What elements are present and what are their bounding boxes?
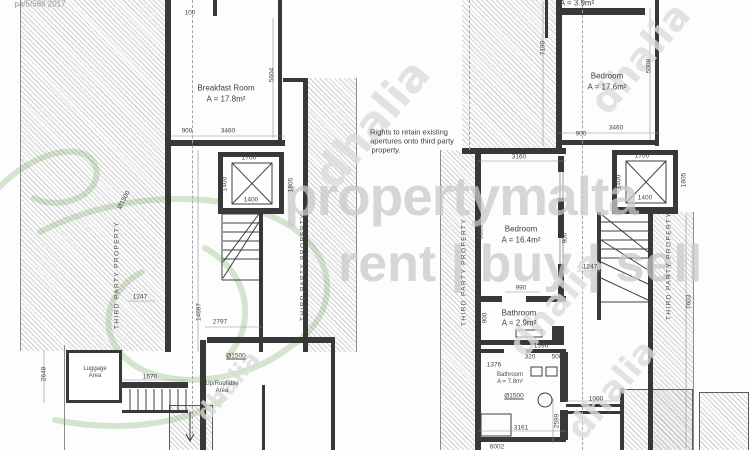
wall [165,0,171,352]
room-label-bathroom-1: Bathroom [502,309,537,318]
boundary-line [20,0,21,351]
wall [122,382,188,388]
dhalia-watermark: dhalia [500,243,612,365]
wall [303,78,308,352]
room-label-breakfast: Breakfast Room [197,84,254,93]
boundary-line [693,212,694,450]
room-area-bedroom-1: A = 17.6m² [588,83,627,92]
wall [122,410,188,413]
dim-label: 1376 [487,362,501,369]
wall [200,340,206,450]
dim-label: 3460 [221,128,235,135]
lift-shaft-left [218,152,284,214]
wall [560,410,568,440]
wall [612,208,678,214]
wall [556,0,562,150]
dim-label: 3160 [512,154,526,161]
room-area-top: A = 3.9m² [560,0,594,8]
dim-label: 2797 [213,319,227,326]
room-label-roofable: Area [216,388,229,394]
wall [262,385,265,450]
boundary-line [64,345,65,450]
wall [259,205,263,352]
dim-label: 1247 [583,264,597,271]
wall [597,212,601,320]
hatch-block-southeast-2 [700,393,748,450]
apertures-note: apertures onto third party [370,137,454,146]
hatch-left-plan-east [307,78,357,352]
wall [648,212,653,450]
wall [655,0,659,146]
dim-label: 5604 [269,68,276,82]
centerline-dashed [192,0,193,434]
hatch-right-plan-top [462,0,557,148]
wall [620,388,624,450]
room-area-breakfast: A = 17.8m² [207,95,246,104]
door-opening [502,296,526,302]
dim-label: 990 [516,285,527,292]
wall [213,0,217,16]
dim-label: 3161 [514,425,528,432]
hatch-left-plan-west [20,0,166,351]
dim-label: 900 [482,313,489,324]
dim-label: 100 [185,10,196,17]
wall [566,411,622,414]
window-opening [558,238,564,264]
wall [560,8,645,15]
dim-label: 1805 [681,173,688,187]
centerline-dashed [469,0,470,150]
dim-label: 14697 [196,303,203,321]
wall [165,140,285,146]
dim-label: 3460 [609,125,623,132]
hatch-block-southeast-1 [624,390,692,450]
dim-label: 900 [576,131,587,138]
dim-label: 1000 [589,396,603,403]
luggage-room-outline [66,350,122,403]
wall [566,404,622,407]
wall [278,0,282,142]
apertures-note: Rights to retain existing [370,128,448,137]
room-area-bathroom-1: A = 2.9m² [502,319,536,328]
wall [545,0,548,38]
boundary-line [440,150,441,450]
dim-label: Ø1500 [504,393,524,400]
room-area-bedroom-2: A = 16.4m² [502,236,541,245]
dim-label: 6002 [490,444,504,450]
centerline-dashed [582,0,583,450]
dim-label: 1805 [288,178,295,192]
dim-label: 320 [525,354,536,361]
dim-label: 1670 [143,374,157,381]
hatch-right-plan-west [440,150,477,450]
boundary-line [356,78,357,352]
wall [478,437,566,442]
dim-label: 5008 [646,59,653,73]
wall [283,78,307,82]
room-label-bedroom-2: Bedroom [505,225,537,234]
room-label-roofable: Up/Roofable [205,381,238,387]
door-opening [504,349,526,353]
wall [552,326,564,342]
room-area-bathroom-2: A = 7.8m² [497,379,523,385]
dim-label: 2648 [41,367,48,381]
wall [560,352,568,402]
dim-label: 900 [182,128,193,135]
room-label-bedroom-1: Bedroom [591,72,623,81]
dhalia-watermark: dhalia [581,0,699,123]
room-label-bathroom-2: Bathroom [497,372,523,378]
wall [218,208,284,214]
window-opening [558,172,564,198]
apertures-note: property. [371,146,400,155]
dim-label: Ø1500 [226,353,246,360]
wall [557,140,659,145]
wall [331,337,335,450]
lift-shaft-right [612,150,678,212]
floor-plan-document: propertymalta rent | buy | sell dhaliadh… [0,0,750,450]
wall [207,337,331,343]
